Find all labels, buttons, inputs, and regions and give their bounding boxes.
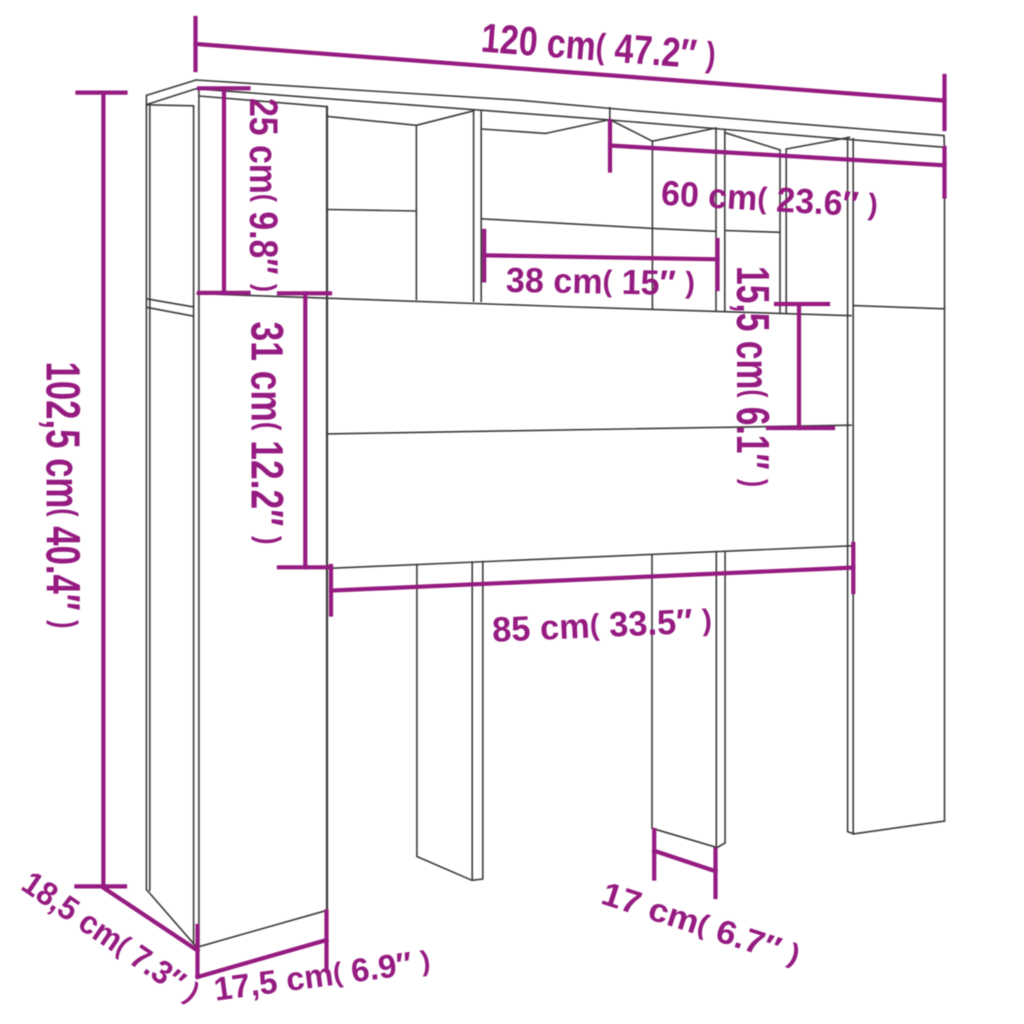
svg-text:31 cm( 12.2″ ): 31 cm( 12.2″ ) (242, 322, 293, 545)
svg-text:102,5 cm( 40.4″ ): 102,5 cm( 40.4″ ) (36, 362, 89, 629)
svg-text:15,5 cm( 6.1″ ): 15,5 cm( 6.1″ ) (727, 266, 779, 487)
svg-text:38 cm( 15″ ): 38 cm( 15″ ) (506, 261, 696, 303)
